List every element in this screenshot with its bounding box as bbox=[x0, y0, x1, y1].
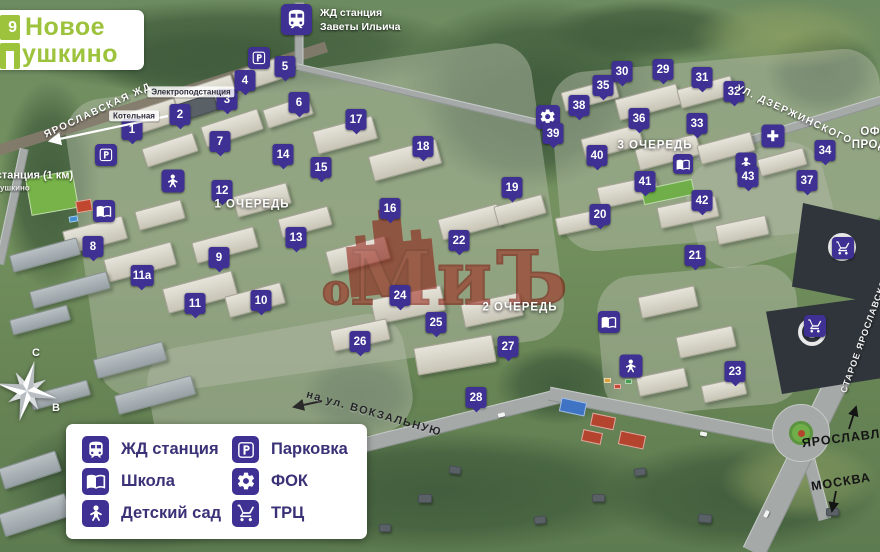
train-icon bbox=[82, 436, 109, 463]
building-marker-18[interactable]: 18 bbox=[413, 136, 434, 157]
legend-item-label: Детский сад bbox=[121, 504, 221, 523]
car bbox=[700, 431, 708, 436]
sports-court bbox=[625, 379, 632, 384]
building bbox=[379, 524, 391, 532]
building-marker-43[interactable]: 43 bbox=[738, 166, 759, 187]
building-marker-11[interactable]: 11 bbox=[185, 293, 206, 314]
building-marker-21[interactable]: 21 bbox=[685, 245, 706, 266]
building-marker-17[interactable]: 17 bbox=[346, 109, 367, 130]
building-marker-16[interactable]: 16 bbox=[380, 198, 401, 219]
building-marker-1[interactable]: 1 bbox=[122, 119, 143, 140]
building bbox=[534, 515, 547, 524]
building bbox=[418, 494, 432, 503]
kindergarten-icon bbox=[620, 355, 643, 378]
sports-complex-icon bbox=[232, 468, 259, 495]
legend-item-4: ФОК bbox=[232, 466, 367, 498]
parking-icon bbox=[95, 144, 117, 166]
building-marker-14[interactable]: 14 bbox=[273, 144, 294, 165]
map-label: Пушкино bbox=[0, 183, 30, 192]
building-marker-29[interactable]: 29 bbox=[653, 59, 674, 80]
legend: ЖД станцияШколаДетский садПарковкаФОКТРЦ bbox=[66, 424, 367, 539]
sports-court bbox=[614, 384, 621, 389]
building bbox=[698, 513, 713, 523]
building-marker-2[interactable]: 2 bbox=[170, 104, 191, 125]
compass-east-label: В bbox=[52, 402, 60, 414]
train-icon bbox=[281, 4, 312, 35]
building-marker-13[interactable]: 13 bbox=[286, 227, 307, 248]
legend-item-label: ФОК bbox=[271, 472, 308, 491]
mall-icon bbox=[232, 500, 259, 527]
building-marker-6[interactable]: 6 bbox=[289, 92, 310, 113]
building-marker-8[interactable]: 8 bbox=[83, 236, 104, 257]
legend-item-0: ЖД станция bbox=[82, 434, 232, 466]
building bbox=[9, 305, 71, 336]
logo-line1: Новое bbox=[25, 13, 105, 42]
masterplan-map: оМиЪ 123456789101111а1213141516171819202… bbox=[0, 0, 880, 552]
building-marker-15[interactable]: 15 bbox=[311, 157, 332, 178]
map-label: ОФИС ПРОДАЖ bbox=[852, 126, 880, 152]
sports-court bbox=[604, 378, 611, 383]
parking-icon bbox=[232, 436, 259, 463]
school-icon bbox=[82, 468, 109, 495]
project-logo: 9 Новое ушкино bbox=[0, 3, 150, 71]
building bbox=[449, 465, 462, 475]
building-marker-42[interactable]: 42 bbox=[692, 190, 713, 211]
station-callout-label: ЖД станция Заветы Ильича bbox=[320, 7, 401, 34]
building-marker-27[interactable]: 27 bbox=[498, 336, 519, 357]
building bbox=[634, 467, 647, 477]
sports-court bbox=[590, 412, 616, 430]
building-marker-30[interactable]: 30 bbox=[612, 61, 633, 82]
logo-line2: ушкино bbox=[22, 40, 118, 69]
kindergarten-icon bbox=[82, 500, 109, 527]
legend-item-3: Парковка bbox=[232, 434, 367, 466]
building-marker-22[interactable]: 22 bbox=[449, 230, 470, 251]
building-marker-41[interactable]: 41 bbox=[635, 171, 656, 192]
compass-star-icon bbox=[0, 351, 67, 431]
logo-letter-p-glyph bbox=[0, 43, 20, 69]
legend-item-label: ЖД станция bbox=[121, 440, 219, 459]
map-label: 1 ОЧЕРЕДЬ bbox=[214, 198, 289, 211]
building-marker-11а[interactable]: 11а bbox=[131, 265, 154, 286]
building-marker-37[interactable]: 37 bbox=[797, 170, 818, 191]
station-callout: ЖД станция Заветы Ильича bbox=[281, 4, 401, 35]
sports-court bbox=[618, 430, 646, 449]
map-label: Котельная bbox=[109, 110, 159, 121]
map-label: 3 ОЧЕРЕДЬ bbox=[617, 139, 692, 152]
compass-north-label: С bbox=[32, 347, 40, 359]
legend-item-1: Школа bbox=[82, 466, 232, 498]
logo-badge: 9 bbox=[0, 15, 20, 40]
building-marker-38[interactable]: 38 bbox=[569, 95, 590, 116]
legend-item-2: Детский сад bbox=[82, 497, 232, 529]
legend-item-label: ТРЦ bbox=[271, 504, 304, 523]
building-marker-35[interactable]: 35 bbox=[593, 75, 614, 96]
map-label: ЖД станция (1 км) bbox=[0, 170, 73, 183]
building bbox=[826, 508, 839, 516]
map-label: 2 ОЧЕРЕДЬ bbox=[482, 301, 557, 314]
building-marker-24[interactable]: 24 bbox=[390, 285, 411, 306]
building-marker-31[interactable]: 31 bbox=[692, 67, 713, 88]
building-marker-5[interactable]: 5 bbox=[275, 56, 296, 77]
building bbox=[592, 494, 605, 502]
legend-item-label: Школа bbox=[121, 472, 175, 491]
school-icon bbox=[673, 154, 693, 174]
school-icon bbox=[598, 311, 620, 333]
building-marker-26[interactable]: 26 bbox=[350, 331, 371, 352]
building-marker-34[interactable]: 34 bbox=[815, 140, 836, 161]
mall-icon bbox=[832, 237, 854, 259]
legend-item-5: ТРЦ bbox=[232, 497, 367, 529]
kindergarten-icon bbox=[162, 170, 185, 193]
building-marker-25[interactable]: 25 bbox=[426, 312, 447, 333]
building-marker-7[interactable]: 7 bbox=[210, 131, 231, 152]
building-marker-39[interactable]: 39 bbox=[543, 123, 564, 144]
parking-icon bbox=[248, 47, 270, 69]
building-marker-28[interactable]: 28 bbox=[466, 387, 487, 408]
mall-icon bbox=[804, 315, 826, 337]
building-marker-9[interactable]: 9 bbox=[209, 247, 230, 268]
legend-item-label: Парковка bbox=[271, 440, 348, 459]
building-marker-40[interactable]: 40 bbox=[587, 145, 608, 166]
medical-icon bbox=[762, 125, 785, 148]
building-marker-23[interactable]: 23 bbox=[725, 361, 746, 382]
building-marker-20[interactable]: 20 bbox=[590, 204, 611, 225]
legend-grid: ЖД станцияШколаДетский садПарковкаФОКТРЦ bbox=[82, 434, 367, 529]
building-marker-36[interactable]: 36 bbox=[629, 108, 650, 129]
direction-arrow bbox=[849, 407, 856, 429]
map-label: Электроподстанция bbox=[147, 86, 234, 97]
building-marker-4[interactable]: 4 bbox=[235, 70, 256, 91]
school-icon bbox=[93, 200, 115, 222]
building-marker-33[interactable]: 33 bbox=[687, 113, 708, 134]
building-marker-10[interactable]: 10 bbox=[251, 290, 272, 311]
building-marker-19[interactable]: 19 bbox=[502, 177, 523, 198]
compass-rose: С В bbox=[0, 358, 68, 432]
